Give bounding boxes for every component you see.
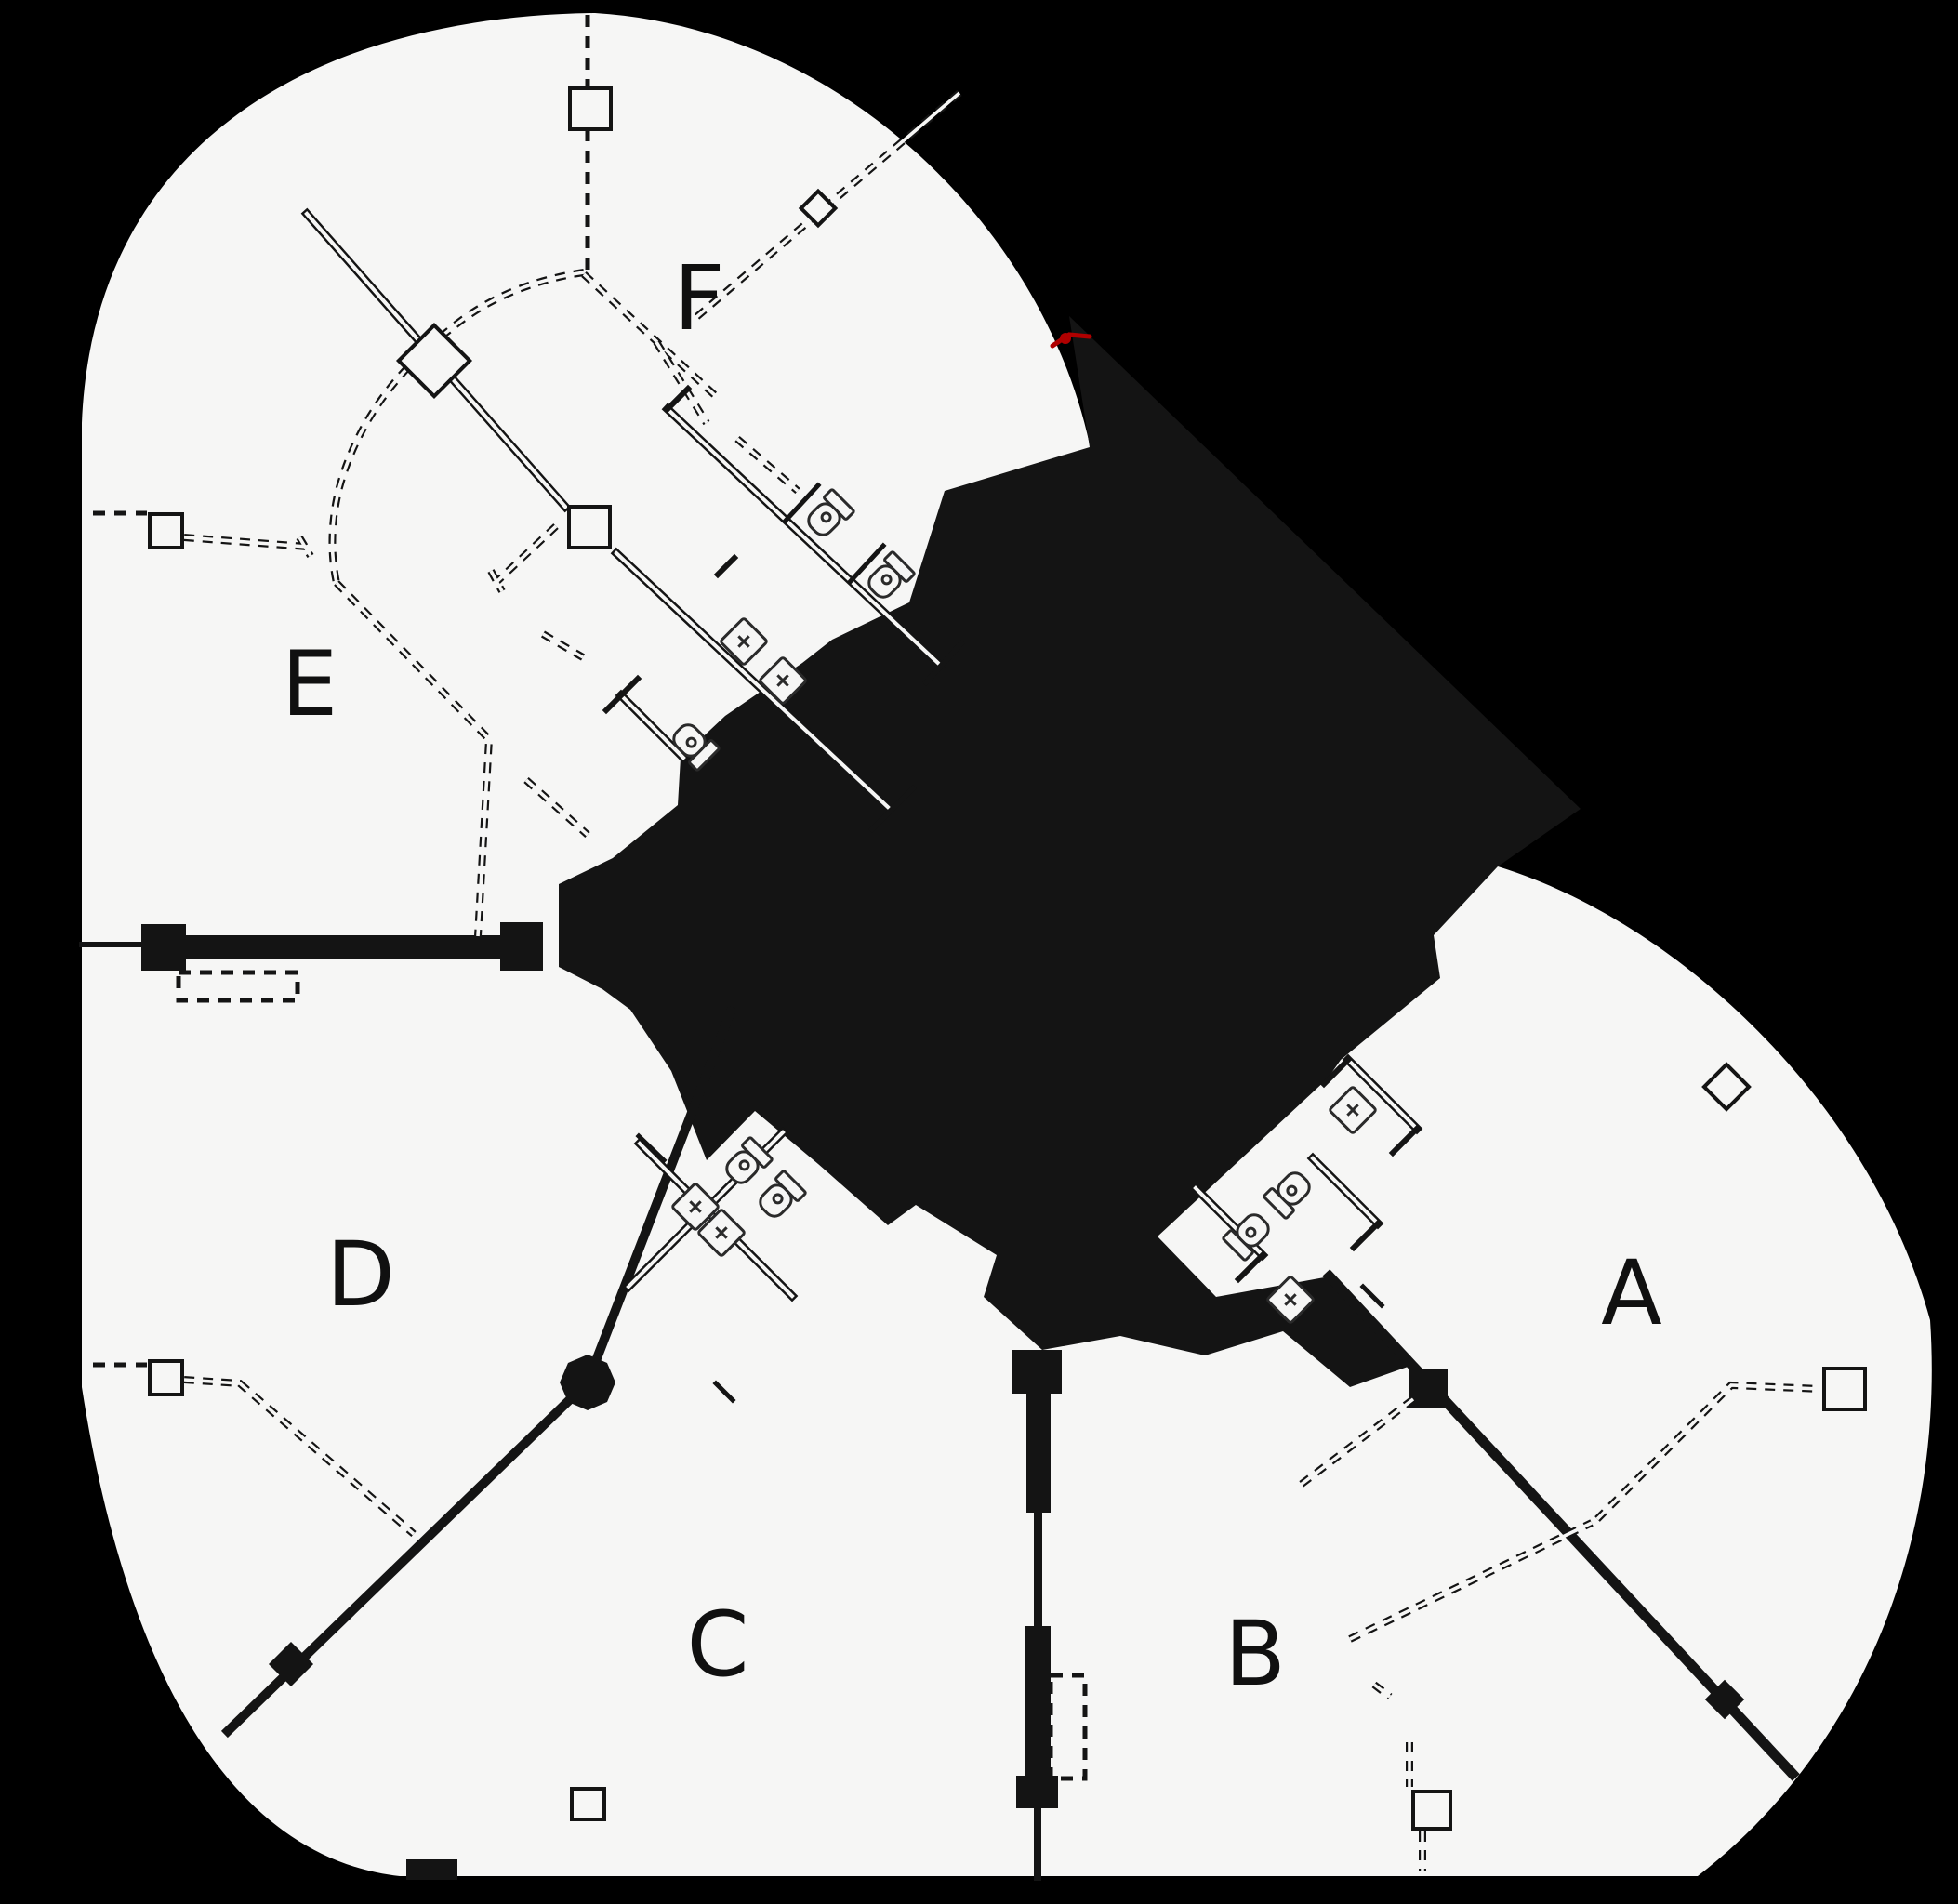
wall-block xyxy=(500,922,543,971)
marker-square xyxy=(570,88,611,129)
marker-square xyxy=(1413,1792,1450,1829)
room-label-d: D xyxy=(326,1223,395,1327)
floor-plan-canvas: A B C D E F xyxy=(0,0,1958,1904)
column-octagon xyxy=(560,1355,615,1410)
marker-square xyxy=(572,1789,604,1819)
room-label-c: C xyxy=(686,1593,748,1697)
marker-square xyxy=(150,1361,182,1395)
marker-square xyxy=(150,514,182,548)
room-label-a: A xyxy=(1601,1241,1662,1345)
wall-block xyxy=(406,1859,457,1880)
wall-block xyxy=(141,924,186,971)
column-square xyxy=(569,507,610,548)
room-label-b: B xyxy=(1224,1602,1286,1706)
floor-plan-drawing: A B C D E F xyxy=(0,0,1958,1904)
room-label-e: E xyxy=(282,632,338,736)
marker-square xyxy=(1824,1368,1865,1409)
room-label-f: F xyxy=(673,246,724,350)
